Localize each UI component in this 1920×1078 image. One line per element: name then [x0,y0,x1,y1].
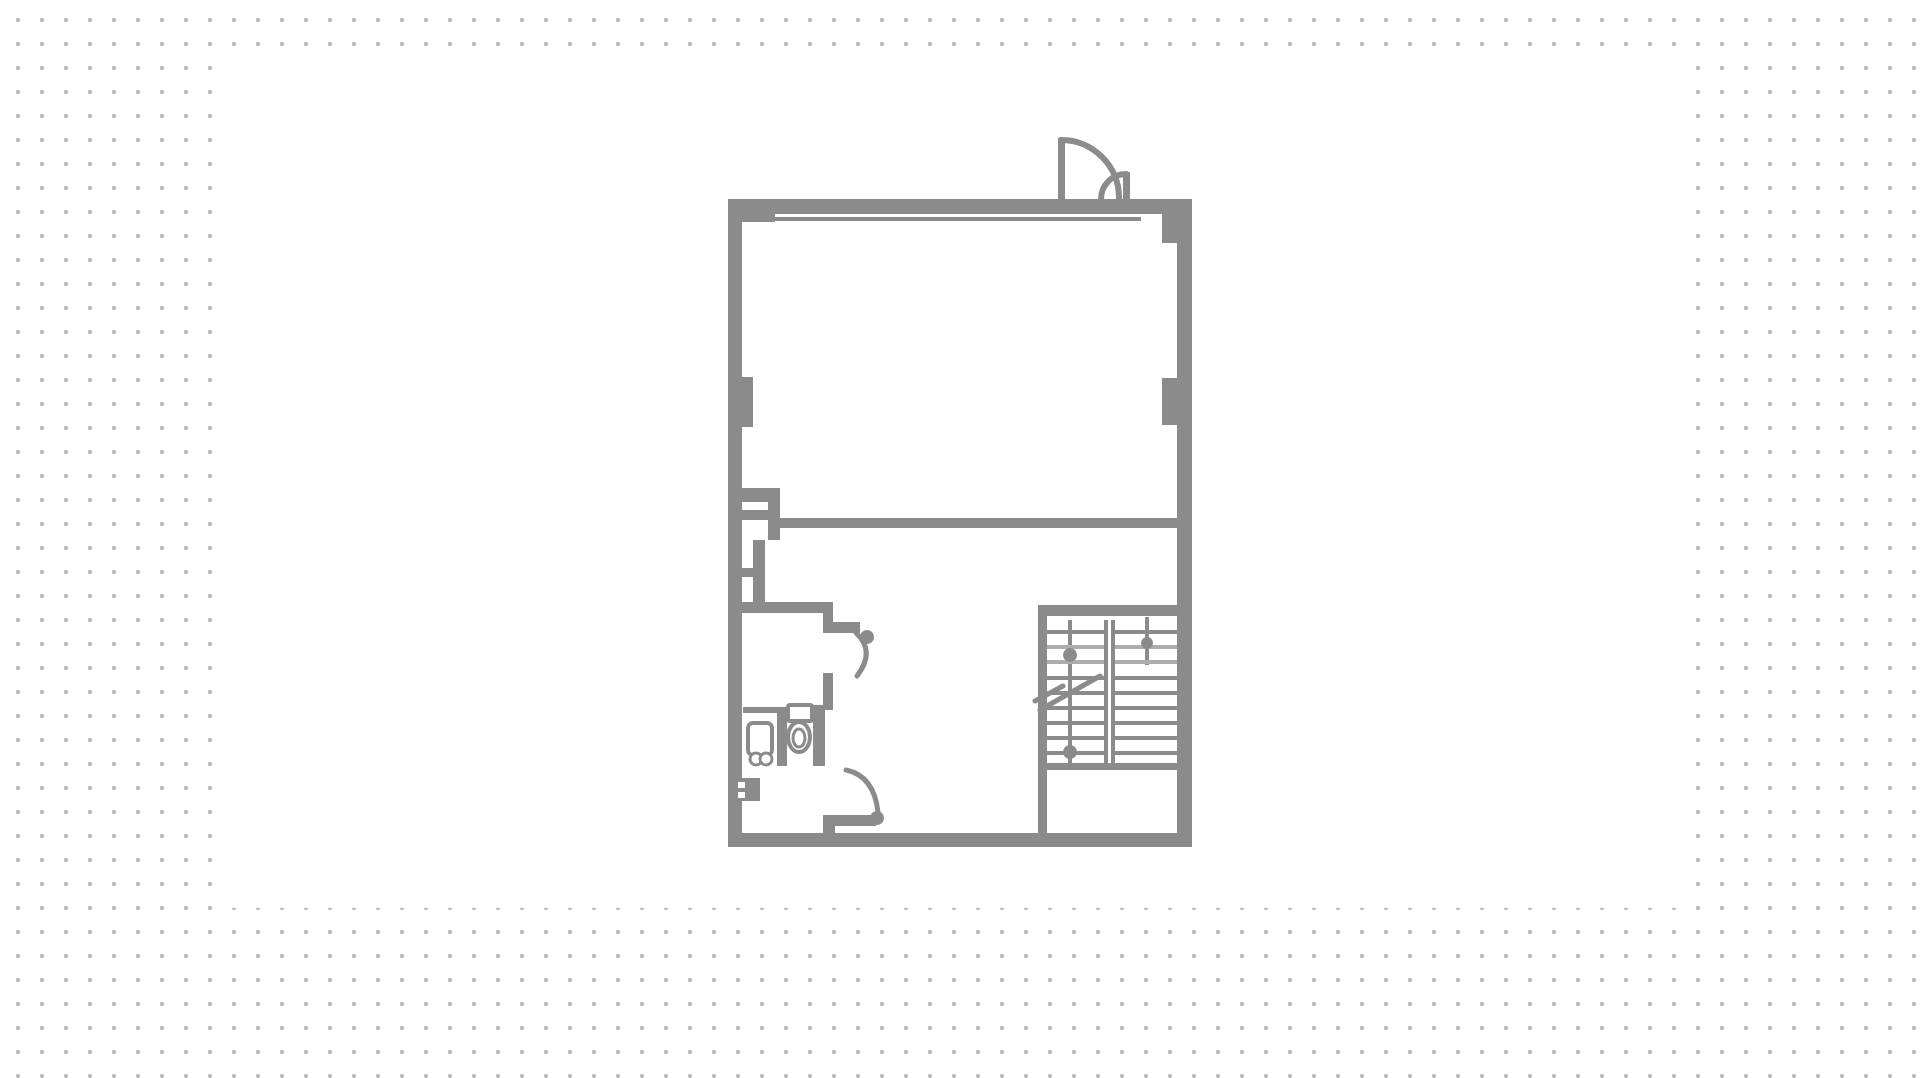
stair-tread [1047,721,1104,725]
wall-bottom [728,833,1192,847]
dotted-grid-background [0,0,1920,1078]
bath-divider-wall [777,707,787,766]
stair-tread [1047,645,1104,649]
bath-right-wall [813,705,825,766]
stair-tread [1047,660,1104,664]
toilet-bowl-inner [793,729,805,747]
partition-mid-wall [780,518,1177,528]
stair-tread [1115,630,1177,634]
stair-center-divider [1104,620,1108,770]
upper-door-jamb [823,613,833,633]
stair-tread [1115,676,1177,680]
stair-top-edge [1038,605,1177,616]
entry-door-swing-small [1101,174,1126,199]
floor-plan-drawing [0,0,1920,1078]
wall-stub [823,673,833,710]
shaft-notch [738,782,745,788]
upper-door-hinge-dot [860,630,874,644]
washbasin [748,723,772,755]
stair-tread [1115,706,1177,710]
lower-door-leaf [828,815,876,826]
entry-door-swing-large [1061,140,1119,198]
stair-tread [1115,691,1177,695]
stair-arrow-dot [1063,648,1077,662]
pilaster-right [1162,378,1177,425]
stair-tread [1047,736,1104,740]
window-glazing-line [775,217,1141,221]
stair-tread [1047,630,1104,634]
lower-door-swing [846,770,878,812]
lower-door-hinge-dot [870,811,884,825]
bath-cell-top-left [743,707,777,713]
washbasin-knob [760,753,772,765]
stair-tread [1115,721,1177,725]
stair-tread [1047,706,1104,710]
duct-divider [742,568,765,577]
wall-right-head [1162,199,1192,243]
stair-arrow-dot [1141,637,1153,649]
pilaster-left [742,377,753,427]
entry-door-leaf-large [1058,138,1065,199]
stair-center-divider [1111,620,1115,770]
wall-right [1177,199,1192,847]
closet-divider [742,510,768,520]
stair-tread [1115,736,1177,740]
stair-left-wall [1038,605,1047,833]
stair-tread [1115,660,1177,664]
toilet-tank [788,705,812,721]
bathroom-top-wall [742,602,833,613]
window-end-block [742,213,775,222]
stair-tread [1115,751,1177,755]
wall-left [728,199,742,847]
stair-arrow-dot [1063,745,1077,759]
wall-top [728,199,1192,214]
closet-right-wall [768,488,780,540]
shaft-notch [738,792,745,798]
